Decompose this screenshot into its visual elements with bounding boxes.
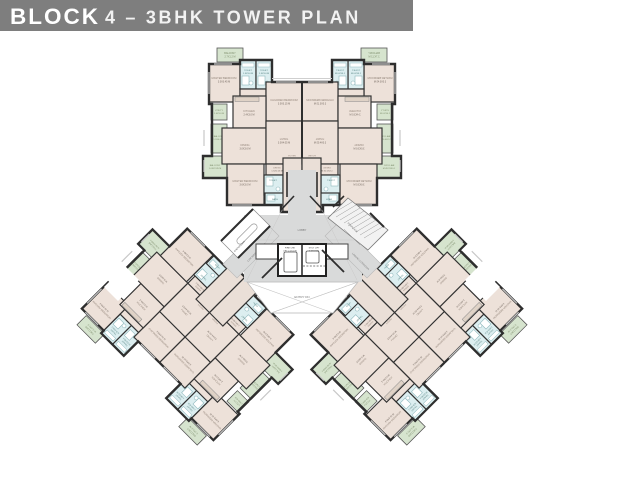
svg-text:2.4X1.945: 2.4X1.945 [309, 250, 320, 252]
svg-text:STILT LIFT: STILT LIFT [309, 248, 321, 250]
svg-text:FIRE CHK: FIRE CHK [285, 248, 296, 250]
svg-text:ENTRY DN: ENTRY DN [294, 295, 309, 299]
svg-text:4 – 3BHK TOWER PLAN: 4 – 3BHK TOWER PLAN [105, 8, 361, 28]
svg-text:LOBBY: LOBBY [298, 228, 307, 232]
svg-text:LIFT 2.1X1.95: LIFT 2.1X1.95 [283, 250, 298, 252]
svg-text:BLOCK: BLOCK [10, 4, 100, 29]
